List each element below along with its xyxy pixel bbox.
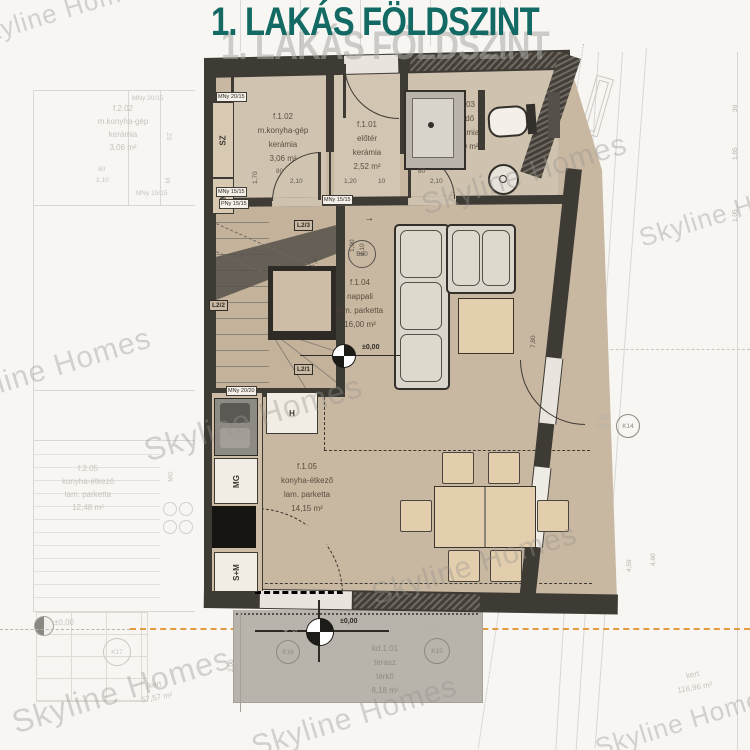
dim-170: 1,70: [252, 171, 259, 184]
watermark: Skyline Homes: [0, 322, 155, 417]
dim-80-mkonyha: 80: [276, 168, 283, 175]
bg-door-width: 80: [98, 165, 105, 174]
dim-240-k14: 2,40: [596, 423, 609, 430]
dim-240-k15a: 2,40: [424, 623, 431, 636]
sofa-arm: [446, 224, 516, 294]
room-id: f.1.05: [262, 460, 352, 474]
dim-240-k16: 2,40: [283, 625, 290, 638]
sofa-cushion: [400, 334, 442, 382]
room-label-f102: f.1.02 m.konyha-gép kerámia 3,06 m²: [238, 110, 328, 166]
room-name: konyha-étkező: [262, 474, 352, 488]
dim-90-k16: 90: [292, 625, 299, 632]
dining-chair: [442, 452, 474, 484]
dim-120: 1,20: [344, 178, 357, 185]
room-floor: kerámia: [332, 146, 402, 160]
terrace-dim-line: [240, 612, 241, 712]
room-name: előtér: [332, 132, 402, 146]
window-tag-k15: K15: [424, 638, 450, 664]
vent-label: MNy 20/20: [226, 386, 257, 396]
dim-10: 10: [378, 178, 385, 185]
bg-window-tag-k17: K17: [103, 638, 131, 666]
watermark: Skyline Homes: [592, 679, 750, 750]
site-dim-30: 30: [732, 105, 739, 112]
garden-right-label: kert 116,96 m²: [674, 665, 713, 697]
room-id: f.2.02: [78, 102, 168, 115]
oven-micro-label: S+M: [231, 564, 240, 581]
bg-washer-label: M: [164, 178, 173, 183]
room-area: 12,48 m²: [43, 501, 133, 514]
bg-stove-burner: [179, 502, 193, 516]
dim-180-k14: 1,80: [596, 414, 609, 421]
dim-780-living: 7,80: [312, 255, 319, 268]
sofa-cushion: [482, 230, 510, 286]
sofa-vertical: [394, 224, 450, 390]
room-id: f.1.01: [332, 118, 402, 132]
room-area: 2,52 m²: [332, 160, 402, 174]
dryer-box: SZ: [212, 102, 234, 178]
bg-window-inner: [585, 80, 609, 133]
room-area: 14,15 m²: [262, 502, 352, 516]
vent-label: PNy 15/15: [219, 199, 249, 209]
bg-level-marker: [34, 616, 54, 636]
room-id: f.2.05: [43, 462, 133, 475]
shower: [404, 90, 466, 170]
level-text-living: ±0,00: [362, 344, 379, 351]
dishwasher-label: MG: [231, 475, 240, 488]
room-id: kd.1.01: [348, 642, 422, 656]
room-floor: kerámia: [78, 128, 168, 141]
stair-label-l23: L2/3: [294, 220, 313, 231]
room-label-f105: f.1.05 konyha-étkező lam. parketta 14,15…: [262, 460, 352, 516]
bg-stove-burner: [163, 502, 177, 516]
window-tag-k14: K14: [616, 414, 640, 438]
jamb-line: [329, 152, 331, 200]
entry-door-leaf: [343, 64, 346, 118]
bg-line: [33, 90, 195, 91]
bg-dryer-label: SZ: [166, 132, 175, 140]
page-title: 1. LAKÁS FÖLDSZINT: [0, 0, 750, 45]
sofa-cushion: [400, 282, 442, 330]
bg-dishwasher-label: MG: [167, 471, 176, 481]
stair-label-l22: L2/2: [209, 300, 228, 311]
room-name: m.konyha-gép: [238, 124, 328, 138]
shower-tray: [412, 98, 454, 158]
room-name: m.konyha-gép: [78, 115, 168, 128]
utility-line-gray: [0, 629, 130, 630]
dishwasher-box: MG: [214, 458, 258, 504]
room-id: f.1.02: [238, 110, 328, 124]
sofa-cushion: [452, 230, 480, 286]
oven-micro-box: S+M: [214, 552, 258, 592]
dim-210-mkonyha: 2,10: [290, 178, 303, 185]
bg-room-label-f205: f.2.05 konyha-étkező lam. parketta 12,48…: [43, 462, 133, 514]
vent-label: MNy 15/15: [216, 187, 247, 197]
room-floor: lam. parketta: [262, 488, 352, 502]
bg-door-height: 2,10: [96, 176, 109, 185]
bg-room-label-f202: f.2.02 m.konyha-gép kerámia 3,06 m²: [78, 102, 168, 154]
bg-line: [33, 390, 195, 391]
bg-vent-label: MNy 20/15: [132, 94, 163, 103]
dim-240-k15b: 2,40: [433, 623, 440, 636]
window-tag-k16: K16: [276, 640, 300, 664]
shower-drain: [428, 122, 434, 128]
vent-label: MNy 20/15: [216, 92, 247, 102]
site-dim-460: 4,60: [650, 553, 657, 566]
vent-label: MNy 15/15: [322, 195, 353, 205]
room-area: 3,06 m²: [238, 152, 328, 166]
towel-radiator: [548, 92, 560, 138]
dim-100: 1,00: [349, 239, 356, 252]
site-dim-185: 1,85: [732, 147, 739, 160]
sofa-cushion: [400, 230, 442, 278]
bg-vent-label: MNy 15/15: [136, 189, 167, 198]
bg-stove-burner: [163, 520, 177, 534]
cooktop: [212, 506, 256, 548]
level-text-terrace: ±0,00: [340, 618, 357, 625]
toilet: [487, 105, 529, 139]
table-divider: [484, 487, 486, 547]
entry-arrow: →: [364, 213, 374, 224]
watermark: Skyline Homes: [636, 169, 750, 253]
bg-line: [33, 205, 195, 206]
terrace-edge-dotted: [236, 613, 478, 615]
kitchen-boundary-h: [324, 450, 590, 451]
level-marker-living: [332, 344, 356, 368]
side-table: [458, 298, 514, 354]
page-title-text: 1. LAKÁS FÖLDSZINT: [211, 0, 539, 45]
bg-stove-burner: [179, 520, 193, 534]
floorplan-canvas: f.2.02 m.konyha-gép kerámia 3,06 m² f.2.…: [0, 0, 750, 750]
stair-label-l21: L2/1: [294, 364, 313, 375]
room-area: 3,06 m²: [78, 141, 168, 154]
dim-780-side: 7,80: [530, 335, 537, 348]
room-name: terasz: [348, 656, 422, 670]
dining-chair: [488, 452, 520, 484]
dim-80-furdo: 80: [418, 168, 425, 175]
room-floor: lam. parketta: [43, 488, 133, 501]
dining-chair: [400, 500, 432, 532]
dryer-label: SZ: [218, 135, 227, 145]
dim-210: 2,10: [359, 243, 366, 256]
bg-level-text: ±0,00: [54, 616, 74, 629]
stair-well: [268, 266, 336, 340]
site-dim-459: 4,59: [626, 559, 633, 572]
room-floor: kerámia: [238, 138, 328, 152]
room-name: konyha-étkező: [43, 475, 133, 488]
level-marker-terrace: [306, 618, 334, 646]
room-label-f101: f.1.01 előtér kerámia 2,52 m²: [332, 118, 402, 174]
